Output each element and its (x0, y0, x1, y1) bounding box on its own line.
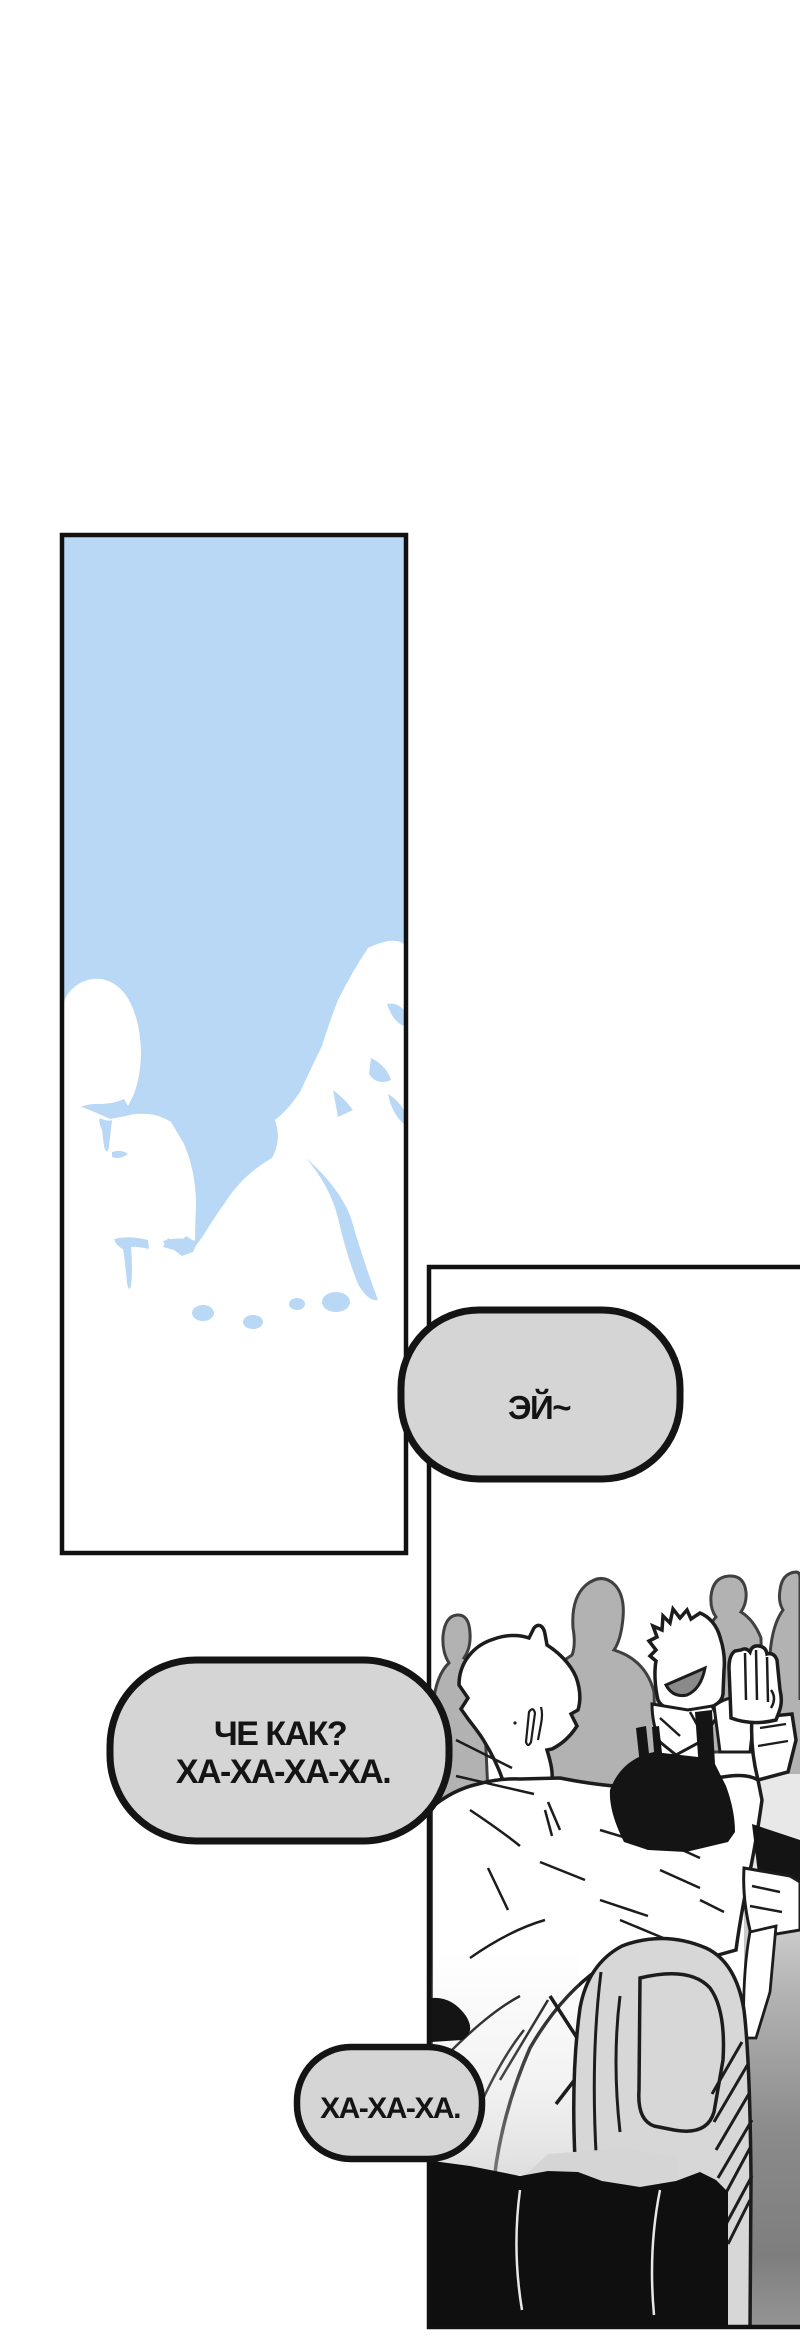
svg-text:ХА-ХА-ХА.: ХА-ХА-ХА. (320, 2092, 460, 2125)
svg-text:ЭЙ~: ЭЙ~ (508, 1388, 571, 1426)
svg-text:ХА-ХА-ХА-ХА.: ХА-ХА-ХА-ХА. (176, 1753, 390, 1791)
svg-text:ЧЕ КАК?: ЧЕ КАК? (214, 1715, 346, 1753)
